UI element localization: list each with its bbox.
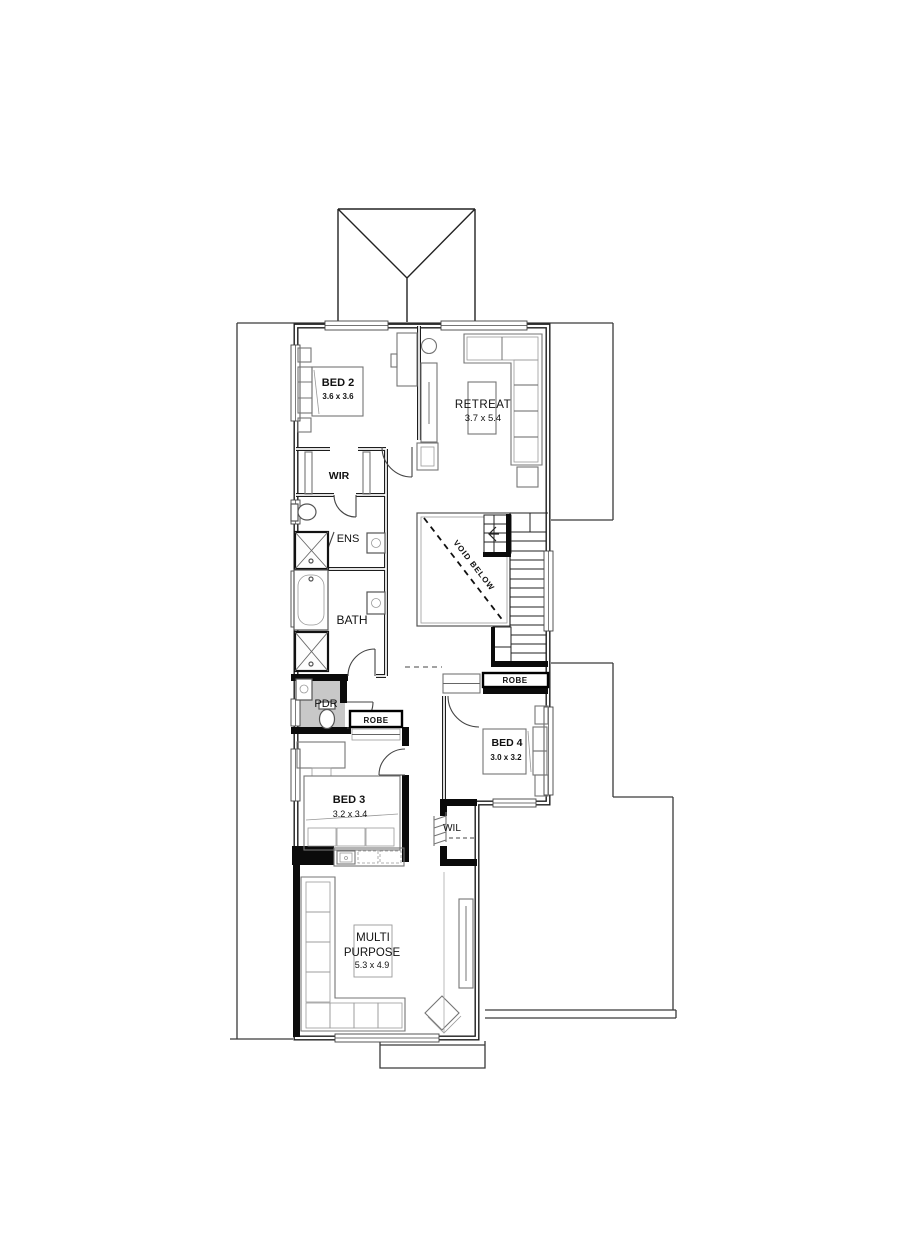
bed2-desk: [397, 333, 417, 386]
vanity: [296, 679, 312, 700]
ens-label: ENS: [337, 533, 360, 545]
bath-door: [348, 649, 375, 676]
floor-plan-svg: BED 2 3.6 x 3.6 RETREAT 3.7 x 5.4 WIR EN…: [0, 0, 901, 1246]
retreat-label: RETREAT: [455, 399, 511, 411]
window: [291, 749, 300, 801]
multi-dims: 5.3 x 4.9: [355, 960, 390, 970]
floor-plan-page: BED 2 3.6 x 3.6 RETREAT 3.7 x 5.4 WIR EN…: [0, 0, 901, 1246]
bed4-bed: [483, 729, 526, 774]
bed4-label: BED 4: [492, 737, 523, 749]
bed2-label: BED 2: [322, 377, 354, 389]
window: [493, 799, 536, 807]
toilet-icon: [298, 504, 316, 520]
bed2-furniture: [298, 333, 417, 494]
wir-rail: [363, 452, 370, 494]
roof-outline: [338, 209, 475, 322]
toilet-icon: [320, 710, 335, 729]
bed3-label: BED 3: [333, 794, 365, 806]
bed3-desk: [297, 742, 345, 768]
multi-label-line2: PURPOSE: [344, 947, 401, 959]
vanity: [367, 533, 385, 553]
bed4-door: [448, 696, 479, 727]
wil-label: WIL: [443, 823, 461, 834]
retreat-dims: 3.7 x 5.4: [465, 413, 501, 424]
window: [441, 321, 527, 330]
robe-upper-label: ROBE: [502, 676, 527, 685]
window: [325, 321, 388, 330]
bed2-dims: 3.6 x 3.6: [322, 392, 354, 401]
bed3-door: [379, 749, 405, 775]
multi-label-line1: MULTI: [356, 932, 390, 944]
bath-label: BATH: [336, 613, 367, 627]
bed4-dims: 3.0 x 3.2: [490, 753, 522, 762]
vanity: [367, 592, 385, 614]
window: [291, 345, 300, 421]
window: [544, 551, 553, 631]
bed3-dims: 3.2 x 3.4: [333, 809, 368, 819]
ens-door: [334, 495, 356, 517]
window: [291, 699, 300, 726]
wir-rail: [305, 452, 312, 494]
bed4-furniture: [483, 706, 548, 796]
wir-label: WIR: [329, 470, 350, 482]
side-table: [422, 339, 437, 354]
pdr-label: PDR: [314, 698, 337, 710]
window: [335, 1034, 439, 1042]
occasional-table: [425, 996, 459, 1030]
ottoman: [517, 467, 538, 487]
robe-lower-label: ROBE: [363, 716, 388, 725]
